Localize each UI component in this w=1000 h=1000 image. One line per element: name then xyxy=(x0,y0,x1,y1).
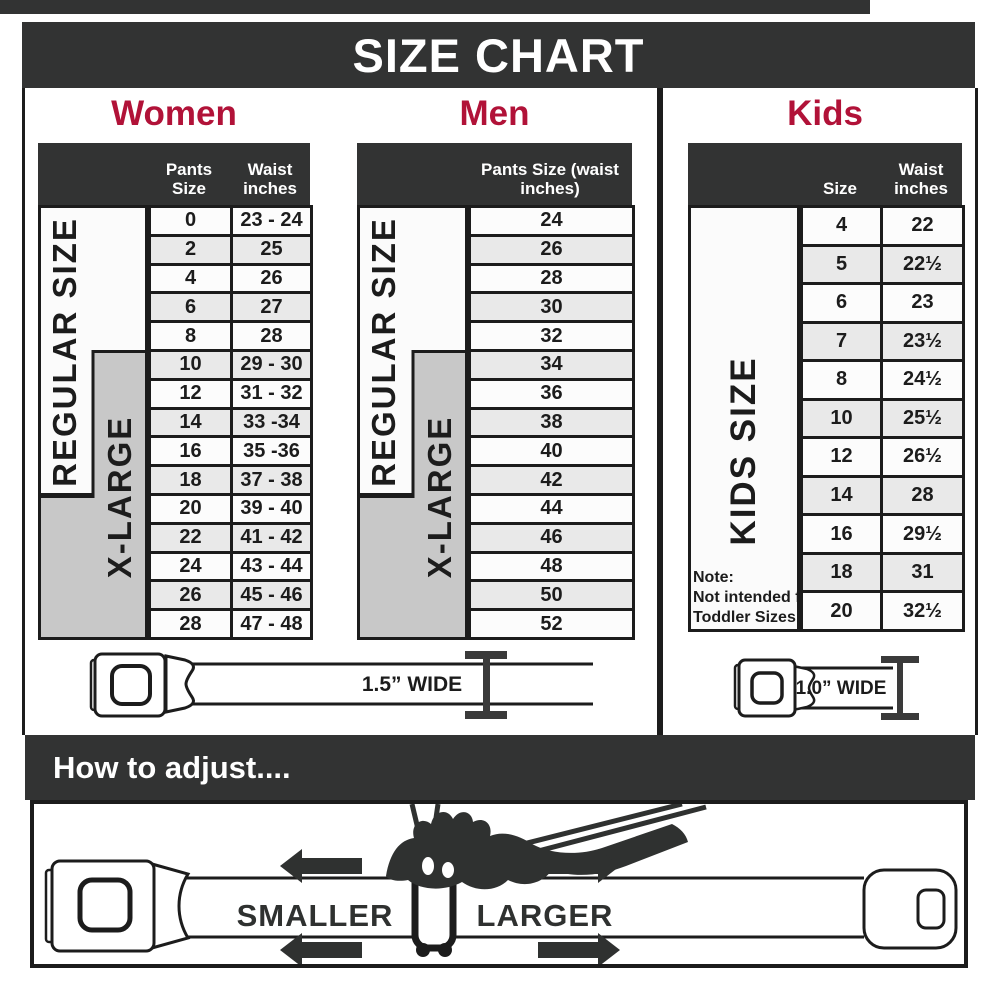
size-cell: 38 xyxy=(470,408,634,437)
kids-belt-graphic: 1.0” WIDE xyxy=(733,652,938,726)
table-row: 24 xyxy=(470,207,634,236)
table-row: 426 xyxy=(150,264,312,293)
women-heading: Women xyxy=(38,94,310,134)
table-row: 2039 - 40 xyxy=(150,494,312,523)
size-cell: 7 xyxy=(802,322,882,361)
waist-cell: 41 - 42 xyxy=(232,523,312,552)
table-row: 2847 - 48 xyxy=(150,610,312,639)
size-cell: 32 xyxy=(470,322,634,351)
size-cell: 28 xyxy=(470,264,634,293)
table-row: 28 xyxy=(470,264,634,293)
waist-cell: 43 - 44 xyxy=(232,552,312,581)
waist-cell: 22½ xyxy=(882,245,964,284)
waist-cell: 28 xyxy=(882,476,964,515)
size-cell: 22 xyxy=(150,523,232,552)
size-cell: 0 xyxy=(150,207,232,236)
table-row: 1635 -36 xyxy=(150,437,312,466)
size-cell: 28 xyxy=(150,610,232,639)
women-table-body: 023 - 242254266278281029 - 301231 - 3214… xyxy=(150,207,312,639)
table-row: 1629½ xyxy=(802,515,964,554)
size-cell: 8 xyxy=(802,361,882,400)
table-row: 44 xyxy=(470,494,634,523)
size-cell: 18 xyxy=(802,553,882,592)
men-regular-size-label: REGULAR SIZE xyxy=(365,202,403,502)
size-cell: 6 xyxy=(150,293,232,322)
table-row: 627 xyxy=(150,293,312,322)
waist-cell: 28 xyxy=(232,322,312,351)
kids-table-header: Size Waist inches xyxy=(688,143,962,205)
women-size-table: Pants Size Waist inches REGULAR SIZE X-L… xyxy=(38,143,310,640)
waist-cell: 24½ xyxy=(882,361,964,400)
table-row: 52 xyxy=(470,610,634,639)
waist-cell: 35 -36 xyxy=(232,437,312,466)
size-cell: 44 xyxy=(470,494,634,523)
adjust-illustration-box: SMALLER LARGER xyxy=(30,800,968,968)
table-row: 1226½ xyxy=(802,438,964,477)
size-cell: 16 xyxy=(802,515,882,554)
table-row: 522½ xyxy=(802,245,964,284)
table-row: 26 xyxy=(470,235,634,264)
size-cell: 24 xyxy=(150,552,232,581)
table-row: 1837 - 38 xyxy=(150,466,312,495)
waist-cell: 23 xyxy=(882,284,964,323)
smaller-label: SMALLER xyxy=(237,898,394,933)
women-table-header: Pants Size Waist inches xyxy=(38,143,310,205)
table-row: 1831 xyxy=(802,553,964,592)
kids-size-table: Size Waist inches KIDS SIZE Note:Not int… xyxy=(688,143,962,632)
men-xlarge-label: X-LARGE xyxy=(421,347,459,647)
size-cell: 6 xyxy=(802,284,882,323)
men-table-header: Pants Size (waist inches) xyxy=(357,143,632,205)
waist-cell: 22 xyxy=(882,207,964,246)
size-cell: 42 xyxy=(470,466,634,495)
table-row: 422 xyxy=(802,207,964,246)
waist-cell: 25 xyxy=(232,235,312,264)
size-cell: 8 xyxy=(150,322,232,351)
size-cell: 10 xyxy=(802,399,882,438)
waist-cell: 45 - 46 xyxy=(232,581,312,610)
waist-cell: 39 - 40 xyxy=(232,494,312,523)
men-heading: Men xyxy=(357,94,632,134)
table-row: 50 xyxy=(470,581,634,610)
kids-size-side-label: KIDS SIZE xyxy=(724,301,764,601)
men-size-table: Pants Size (waist inches) REGULAR SIZE X… xyxy=(357,143,632,640)
table-row: 2443 - 44 xyxy=(150,552,312,581)
adult-belt-width-label: 1.5” WIDE xyxy=(362,673,462,696)
size-cell: 36 xyxy=(470,379,634,408)
women-size-header: Pants Size xyxy=(148,160,230,198)
table-row: 34 xyxy=(470,350,634,379)
adjust-illustration: SMALLER LARGER xyxy=(34,804,964,964)
kids-belt-width-label: 1.0” WIDE xyxy=(796,678,887,699)
table-row: 023 - 24 xyxy=(150,207,312,236)
size-cell: 4 xyxy=(802,207,882,246)
size-cell: 14 xyxy=(150,408,232,437)
table-row: 828 xyxy=(150,322,312,351)
table-row: 2241 - 42 xyxy=(150,523,312,552)
belt-tail xyxy=(864,870,956,948)
women-xlarge-label: X-LARGE xyxy=(101,347,139,647)
table-row: 2645 - 46 xyxy=(150,581,312,610)
size-cell: 48 xyxy=(470,552,634,581)
waist-cell: 27 xyxy=(232,293,312,322)
waist-cell: 33 -34 xyxy=(232,408,312,437)
table-row: 36 xyxy=(470,379,634,408)
women-waist-header: Waist inches xyxy=(230,160,310,198)
size-cell: 52 xyxy=(470,610,634,639)
women-table: 023 - 242254266278281029 - 301231 - 3214… xyxy=(148,205,313,640)
waist-cell: 47 - 48 xyxy=(232,610,312,639)
men-size-header: Pants Size (waist inches) xyxy=(468,160,632,198)
page-title: SIZE CHART xyxy=(22,22,975,88)
top-decorative-strip xyxy=(0,0,870,14)
table-row: 1433 -34 xyxy=(150,408,312,437)
kids-waist-header: Waist inches xyxy=(880,160,962,198)
waist-cell: 26½ xyxy=(882,438,964,477)
seatbelt-buckle-icon xyxy=(91,654,193,716)
size-cell: 26 xyxy=(470,235,634,264)
men-table: 242628303234363840424446485052 xyxy=(468,205,635,640)
belt-strap xyxy=(76,878,864,937)
kids-table: 422522½623723½824½1025½1226½14281629½183… xyxy=(800,205,965,632)
waist-cell: 37 - 38 xyxy=(232,466,312,495)
table-row: 48 xyxy=(470,552,634,581)
size-cell: 12 xyxy=(802,438,882,477)
size-cell: 20 xyxy=(802,592,882,631)
waist-cell: 23½ xyxy=(882,322,964,361)
waist-cell: 29½ xyxy=(882,515,964,554)
table-row: 30 xyxy=(470,293,634,322)
women-regular-size-label: REGULAR SIZE xyxy=(46,202,84,502)
size-cell: 40 xyxy=(470,437,634,466)
size-cell: 5 xyxy=(802,245,882,284)
width-measure-icon xyxy=(881,656,919,720)
kids-heading: Kids xyxy=(688,94,962,134)
table-row: 723½ xyxy=(802,322,964,361)
size-cell: 10 xyxy=(150,350,232,379)
table-row: 1025½ xyxy=(802,399,964,438)
size-cell: 30 xyxy=(470,293,634,322)
size-cell: 20 xyxy=(150,494,232,523)
size-chart-page: SIZE CHART Women Men Kids Pants Size Wai… xyxy=(0,0,1000,1000)
table-row: 40 xyxy=(470,437,634,466)
size-cell: 2 xyxy=(150,235,232,264)
size-cell: 34 xyxy=(470,350,634,379)
table-row: 46 xyxy=(470,523,634,552)
waist-cell: 32½ xyxy=(882,592,964,631)
size-cell: 26 xyxy=(150,581,232,610)
kids-table-body: 422522½623723½824½1025½1226½14281629½183… xyxy=(802,207,964,631)
men-table-body: 242628303234363840424446485052 xyxy=(470,207,634,639)
table-row: 824½ xyxy=(802,361,964,400)
waist-cell: 31 - 32 xyxy=(232,379,312,408)
how-to-adjust-heading: How to adjust.... xyxy=(25,735,975,800)
size-cell: 14 xyxy=(802,476,882,515)
table-row: 623 xyxy=(802,284,964,323)
size-cell: 46 xyxy=(470,523,634,552)
table-row: 1231 - 32 xyxy=(150,379,312,408)
seatbelt-buckle-icon xyxy=(46,861,188,951)
size-cell: 16 xyxy=(150,437,232,466)
table-row: 42 xyxy=(470,466,634,495)
adult-belt-graphic: 1.5” WIDE xyxy=(88,646,600,724)
size-cell: 4 xyxy=(150,264,232,293)
waist-cell: 31 xyxy=(882,553,964,592)
size-cell: 50 xyxy=(470,581,634,610)
size-cell: 24 xyxy=(470,207,634,236)
width-measure-icon xyxy=(465,651,507,719)
table-row: 1428 xyxy=(802,476,964,515)
larger-label: LARGER xyxy=(477,898,614,933)
table-row: 38 xyxy=(470,408,634,437)
waist-cell: 23 - 24 xyxy=(232,207,312,236)
table-row: 225 xyxy=(150,235,312,264)
waist-cell: 25½ xyxy=(882,399,964,438)
waist-cell: 29 - 30 xyxy=(232,350,312,379)
table-row: 1029 - 30 xyxy=(150,350,312,379)
table-row: 32 xyxy=(470,322,634,351)
table-row: 2032½ xyxy=(802,592,964,631)
size-cell: 18 xyxy=(150,466,232,495)
waist-cell: 26 xyxy=(232,264,312,293)
size-cell: 12 xyxy=(150,379,232,408)
kids-size-header: Size xyxy=(800,179,880,198)
